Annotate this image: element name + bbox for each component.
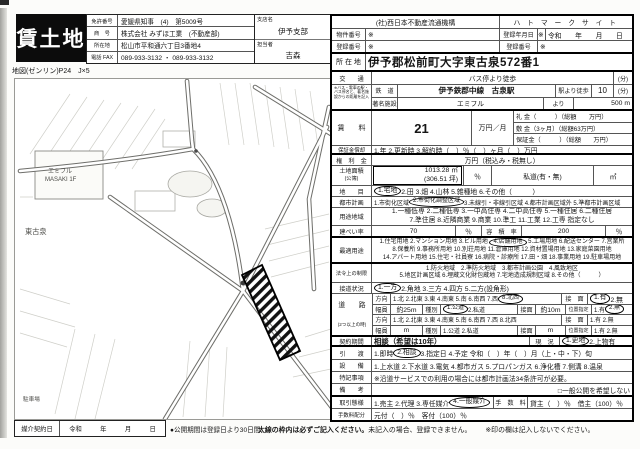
registration-date-value: 令和 年 月 日 [546, 29, 632, 40]
mediation-contract-date: 媒介契約日 令和 年 月 日 [14, 420, 166, 437]
commission-label: 手 数 料 [494, 397, 528, 408]
field-oval [168, 171, 212, 197]
registration-number-row: 登録番号 ※ 登録番号 ※ [332, 40, 632, 52]
scan-edge-shadow [0, 8, 7, 438]
district-label: 東古泉 [25, 227, 47, 236]
option-list: 3.未線引・非線引区域 4.都市計画区域外 5.準都市計画区域 [464, 198, 620, 207]
road-row-3: 方向 1.北 2.北東 3.東 4.南東 5.南 6.南西 7.西 8.北西 接… [373, 314, 632, 325]
utilities-label: 設 備 [332, 360, 372, 371]
special-notes-row: 特記事項 ※沿道サービスでの利用の場合には都市計画法34条許可が必要。 [332, 371, 632, 383]
era-label: 令和 [69, 424, 82, 433]
facility-row: 著名施設 エミフル より 500 m [372, 97, 632, 110]
land-category-value: 1.宅地 2.田 3.畑 4.山林 5.雑種地 6.その他（ ） [372, 186, 632, 196]
rights-money-label: 権 利 金 [332, 155, 372, 165]
parking-label: 駐車場 [23, 395, 40, 403]
zoning-row: 用途地域 1.一種低専 2.二種低専 3.一中高住専 4.二中高住専 5.一種住… [332, 207, 632, 225]
selected-option: 1.宅地 [374, 186, 401, 196]
frontage-value: 1.一方 2.角地 3.三方 4.四方 5.二方(設角形) [372, 283, 632, 293]
option-list: 1.市街化区域 [374, 198, 409, 207]
selected-option: 1.公道 [443, 305, 468, 315]
current-state-label: 現 況 [530, 337, 560, 345]
asterisk-mark: ※ [538, 29, 546, 40]
width-value: 約25m [391, 305, 423, 315]
facility-value: エミフル [398, 98, 544, 110]
utilities-value: 1.上水道 2.下水道 3.電気 4.都市ガス 5.プロパンガス 6.浄化槽 7… [372, 360, 632, 371]
land-area-label: 土地面積 (公簿) [332, 166, 372, 185]
rent-unit: 万円／月 [472, 111, 514, 145]
type-label: 種別 [423, 305, 441, 315]
zoning-line2: 7.準住居 8.近隣商業 9.商業 10.準工 11.工業 12.工専 指定なし [409, 217, 594, 225]
table-row: 免許番号 愛媛県知事 (4) 第5009号 [87, 15, 255, 26]
selected-option: 2.市街化調整区域 [409, 197, 464, 207]
map-reference: 地図(ゼンリン)P24 J×5 [12, 66, 90, 76]
key-money-row: 権 利 金 万円（税込み・税無し） [332, 155, 632, 165]
mediation-date-label: 媒介契約日 [15, 421, 60, 436]
option-list: 3.指定日 4.予定 令和（ ）年（ ）月（上・中・下）旬 [421, 348, 592, 358]
staff-label: 担当者 [255, 39, 331, 49]
access-note: ※バス・電車の駅・バス停名と、著名施設からの距離を記入 [332, 85, 372, 109]
company-name-label: 商 号 [87, 27, 118, 38]
option-list: 1.住宅用地 2.マンション用地 3.ビル用地 [379, 239, 489, 245]
legal-line2: 5.地区計画区域 6.埋蔵文化財包蔵地 7.宅地造成規制区域 8.その他（ ） [399, 273, 604, 281]
amortization-label: 保証金償却 [332, 146, 372, 153]
staff-value: 吉森 [255, 49, 331, 64]
transport-label: 交 通 [332, 72, 372, 84]
access-block: ※バス・電車の駅・バス停名と、著名施設からの距離を記入 鉄 道 伊予鉄郡中線 古… [332, 84, 632, 109]
abutment-label: 接 面 [562, 315, 588, 325]
transport-row: 交 通 バス停より徒歩 (分) [332, 72, 632, 84]
from-label: より [544, 98, 574, 110]
commission-value: 貸主（ ）％ 借主（100）％ [528, 397, 632, 408]
property-number-label: 物件番号 [332, 29, 366, 40]
rent-label: 賃 料 [332, 111, 372, 145]
table-row: 所在地 松山市平和通六丁目3番地4 [87, 39, 255, 51]
best-use-line2: 8.保養所 9.事務所用地 10.別荘用地 11.倉庫用地 12.資材置場用地 … [392, 247, 611, 255]
legal-restrictions-row: 法令上の制限 1.防火地域 2.準防火地域 3.都市計画公園 4.風致地区 5.… [332, 264, 632, 282]
footer-instructions: 太線の枠内は必ずご記入ください。未記入の場合、登録できません。※印の欄は記入しな… [258, 424, 594, 434]
day-label: 日 [150, 424, 156, 433]
license-number-value: 愛媛県知事 (4) 第5009号 [118, 15, 255, 26]
license-number-label: 免許番号 [87, 15, 118, 26]
handover-label: 引 渡 [332, 347, 372, 359]
legal-restrictions-label: 法令上の制限 [332, 264, 372, 282]
option-list: 1.北 2.北東 3.東 4.南東 5.南 6.南西 7.西 [393, 294, 498, 303]
registration-number2-label: 登録番号 [500, 41, 538, 52]
road-second-label: (2つ以上の時) [332, 315, 372, 336]
road-row-4: 幅員 m 種別 1.公道 2.私道 接面 m 位置指定 1.有 2.無 [373, 325, 632, 336]
bold-frame-note: 太線の枠内は必ずご記入ください。 [258, 427, 368, 434]
walk-label: 駅より徒歩 [556, 85, 592, 97]
city-planning-row: 都市計画 1.市街化区域 2.市街化調整区域 3.未線引・非線引区域 4.都市計… [332, 196, 632, 207]
company-name-value: 株式会社 みずほ工業 (不動産部) [118, 27, 255, 38]
walk-minutes: 10 [592, 85, 614, 97]
road-row-2: 幅員 約25m 種別 1.公道 2.私道 接面 約10m 位置指定 1.有 2.… [373, 304, 632, 315]
option-list: 5.工場用地 6.配送センター 7.営業所 [527, 239, 625, 245]
company-address-value: 松山市平和通六丁目3番地4 [118, 40, 255, 51]
option-list: 2.角地 3.三方 4.四方 5.二方(設角形) [401, 283, 509, 293]
handover-row: 引 渡 1.即時 2.相談 3.指定日 4.予定 令和（ ）年（ ）月（上・中・… [332, 347, 632, 359]
position-label: 位置指定 [566, 326, 592, 336]
selected-option: 4.店舗用地 [489, 238, 526, 247]
abut-width-value: 約10m [536, 305, 566, 315]
legal-restrictions-value: 1.防火地域 2.準防火地域 3.都市計画公園 4.風致地区 5.地区計画区域 … [372, 264, 632, 282]
road-label: 道 路 [332, 294, 372, 315]
map-labels: 東古泉 エミフル MASAKI 1F 駐車場 [23, 168, 77, 403]
rent-value: 21 [372, 111, 472, 145]
transaction-type-label: 取引態様 [332, 397, 372, 408]
security-deposit: 敷 金（3ヶ月）（総額63万円） [514, 123, 632, 134]
position-label: 位置指定 [566, 305, 592, 315]
best-use-value: 1.住宅用地 2.マンション用地 3.ビル用地 4.店舗用地 5.工場用地 6.… [372, 238, 632, 262]
unfilled-note: 未記入の場合、登録できません。 [368, 427, 471, 434]
map-roads-surface [20, 81, 331, 419]
map-roads-casing [20, 81, 331, 419]
utilities-row: 設 備 1.上水道 2.下水道 3.電気 4.都市ガス 5.プロパンガス 6.浄… [332, 359, 632, 371]
width-value: m [391, 326, 423, 336]
mediation-date-fields: 令和 年 月 日 [60, 421, 165, 436]
location-label: 所 在 地 [332, 54, 366, 70]
best-use-line1: 1.住宅用地 2.マンション用地 3.ビル用地 4.店舗用地 5.工場用地 6.… [379, 238, 624, 247]
coverage-label: 建ぺい率 [332, 226, 372, 236]
position-value: 1.有 2.無 [592, 305, 632, 315]
remarks-label: 備 考 [332, 384, 372, 395]
rail-line-value: 伊予鉄郡中線 古泉駅 [398, 85, 556, 97]
remarks-row: 備 考 □一般公開を希望しない [332, 383, 632, 395]
remarks-value: □一般公開を希望しない [372, 384, 632, 395]
phone-fax-label: 電話 FAX [87, 52, 118, 63]
abut-width-value: m [536, 326, 566, 336]
zoning-value: 1.一種低専 2.二種低専 3.一中高住専 4.二中高住専 5.一種住居 6.二… [372, 208, 632, 225]
commission-split-value: 元付（ ）％ 客付（100）％ [372, 409, 632, 420]
zoning-line1: 1.一種低専 2.二種低専 3.一中高住専 4.二中高住専 5.一種住居 6.二… [392, 208, 612, 216]
subject-parcel-hatched [242, 265, 300, 360]
coverage-value: 70 [372, 226, 456, 236]
org-name: (社)西日本不動産流通機構 [332, 16, 500, 28]
table-row: 電話 FAX 089-933-3132 ・ 089-933-3132 [87, 51, 255, 63]
location-row: 所 在 地 伊予郡松前町大字東古泉572番1 [332, 52, 632, 72]
road-block: 道 路 (2つ以上の時) 方向 1.北 2.北東 3.東 4.南東 5.南 6.… [332, 293, 632, 335]
direction-label: 方向 [373, 294, 391, 304]
percent-cell: ％ [464, 166, 492, 185]
option-list: 2.上物有 [589, 337, 615, 345]
commission-split-label: 手数料配分 [332, 409, 372, 420]
branch-value: 伊予支部 [255, 24, 331, 39]
road-label-col: 道 路 (2つ以上の時) [332, 294, 373, 335]
direction-value: 1.北 2.北東 3.東 4.南東 5.南 6.南西 7.西 8.北西 [391, 294, 562, 304]
property-number-value: ※ [366, 29, 500, 40]
road-rows: 方向 1.北 2.北東 3.東 4.南東 5.南 6.南西 7.西 8.北西 接… [373, 294, 632, 335]
table-row: 商 号 株式会社 みずほ工業 (不動産部) [87, 26, 255, 38]
legal-line1: 1.防火地域 2.準防火地域 3.都市計画公園 4.風致地区 [426, 266, 578, 274]
rent-block: 賃 料 21 万円／月 礼 金（ ）（総額 万円） 敷 金（3ヶ月）（総額63万… [332, 109, 632, 145]
land-category-label: 地 目 [332, 186, 372, 196]
org-header-row: (社)西日本不動産流通機構 ハ ト マ ー ク サ イ ト [332, 16, 632, 28]
contract-period-value: 相談（希望は10年） [372, 337, 530, 345]
scan-artifact [0, 0, 9, 5]
guarantee-money: 保証金（ ）（総額 万円） [514, 134, 632, 145]
deposit-rows: 礼 金（ ）（総額 万円） 敷 金（3ヶ月）（総額63万円） 保証金（ ）（総額… [514, 111, 632, 145]
percent-sign: ％ [606, 226, 632, 236]
road-frontage-row: 接道状況 1.一方 2.角地 3.三方 4.四方 5.二方(設角形) [332, 282, 632, 293]
land-area-tsubo: (306.51 坪) [424, 176, 458, 184]
registration-number-label: 登録番号 [332, 41, 366, 52]
city-planning-value: 1.市街化区域 2.市街化調整区域 3.未線引・非線引区域 4.都市計画区域外 … [372, 197, 632, 207]
option-list: 1.有 [594, 305, 605, 314]
property-detail-panel: (社)西日本不動産流通機構 ハ ト マ ー ク サ イ ト 物件番号 ※ 登録年… [330, 14, 634, 422]
private-road-cell: 私道(有・無) [492, 166, 594, 185]
abutment-value: 1.有 2.無 [588, 294, 632, 304]
zoning-label: 用途地域 [332, 208, 372, 225]
minutes-unit: (分) [614, 85, 632, 97]
m2-cell: ㎡ [594, 166, 632, 185]
abut-width-label: 接面 [518, 326, 536, 336]
best-use-line3: 14.アパート用地 15.住宅・社員寮 16.病院・診療所 17.田・畑 18.… [383, 255, 621, 262]
frontage-label: 接道状況 [332, 283, 372, 293]
document-title: 賃土地 [16, 14, 86, 62]
commission-split-row: 手数料配分 元付（ ）％ 客付（100）％ [332, 408, 632, 420]
key-money: 礼 金（ ）（総額 万円） [514, 111, 632, 122]
selected-option: 8.北西 [498, 294, 523, 304]
option-list: 2.無 [610, 294, 622, 304]
abutment-label: 接 面 [562, 294, 588, 304]
publication-period-note: ●公開期間は登録日より30日間 [170, 424, 260, 434]
phone-fax-value: 089-933-3132 ・ 089-933-3132 [118, 52, 255, 63]
minutes-unit: (分) [614, 72, 632, 84]
month-label: 月 [125, 424, 131, 433]
land-area-box-cell: 1013.28 ㎡ (306.51 坪) [372, 166, 464, 185]
mall-label-line1: エミフル [48, 168, 72, 175]
rail-row: 鉄 道 伊予鉄郡中線 古泉駅 駅より徒歩 10 (分) [372, 85, 632, 97]
property-number-row: 物件番号 ※ 登録年月日 ※ 令和 年 月 日 [332, 28, 632, 40]
transport-value: バス停より徒歩 [372, 72, 614, 84]
direction-label: 方向 [373, 315, 391, 325]
selected-option: 2.相談 [393, 348, 420, 359]
selected-option: 1.一方 [374, 283, 401, 293]
type-value: 1.公道 2.私道 [441, 305, 518, 315]
special-notes-label: 特記事項 [332, 372, 372, 383]
amortization-value: 1.年 2.更新時 3.解約時（ ）％（ ）ヶ月（ ）万円 [372, 146, 632, 153]
selected-option: 1.更地 [562, 337, 589, 345]
registration-number2-value: ※ [538, 41, 632, 52]
registration-number-value: ※ [366, 41, 500, 52]
abutment-value: 1.有 2.無 [588, 315, 632, 325]
small-building [135, 191, 175, 211]
selected-option: 2.無 [605, 305, 624, 315]
special-notes-value: ※沿道サービスでの利用の場合には都市計画法34条許可が必要。 [372, 372, 632, 383]
type-label: 種別 [423, 326, 441, 336]
coverage-ratio-row: 建ぺい率 70 ％ 容 積 率 200 ％ [332, 225, 632, 236]
position-value: 1.有 2.無 [592, 326, 632, 336]
type-value: 1.公道 2.私道 [441, 326, 518, 336]
branch-label: 支店名 [255, 15, 331, 24]
option-list: 2.私道 [468, 305, 485, 314]
percent-sign: ％ [456, 226, 482, 236]
map-landmark-dot [194, 149, 198, 153]
agency-info-table: 免許番号 愛媛県知事 (4) 第5009号 商 号 株式会社 みずほ工業 (不動… [86, 14, 256, 64]
document-page: 賃土地 免許番号 愛媛県知事 (4) 第5009号 商 号 株式会社 みずほ工業… [0, 0, 640, 449]
option-list: 1.即時 [374, 348, 393, 358]
rights-money-value: 万円（税込み・税無し） [372, 155, 632, 165]
branch-staff-table: 支店名 伊予支部 担当者 吉森 [254, 14, 332, 64]
registration-date-label: 登録年月日 [500, 29, 538, 40]
land-area-row: 土地面積 (公簿) 1013.28 ㎡ (306.51 坪) ％ 私道(有・無)… [332, 165, 632, 185]
asterisk-note: ※印の欄は記入しないでください。 [485, 427, 594, 434]
direction-value: 1.北 2.北東 3.東 4.南東 5.南 6.南西 7.西 8.北西 [391, 315, 562, 325]
land-category-row: 地 目 1.宅地 2.田 3.畑 4.山林 5.雑種地 6.その他（ ） [332, 185, 632, 196]
handover-value: 1.即時 2.相談 3.指定日 4.予定 令和（ ）年（ ）月（上・中・下）旬 [372, 347, 632, 359]
option-list: 2.田 3.畑 4.山林 5.雑種地 6.その他（ ） [401, 186, 539, 196]
city-planning-label: 都市計画 [332, 197, 372, 207]
land-area-label-sub: (公簿) [345, 176, 359, 183]
year-label: 年 [100, 424, 106, 433]
facility-distance: 500 m [574, 98, 632, 110]
emifull-building [35, 151, 103, 199]
rail-label: 鉄 道 [372, 85, 398, 97]
facility-label: 著名施設 [372, 98, 398, 110]
land-area-values: 1013.28 ㎡ (306.51 坪) [373, 166, 462, 184]
width-label: 幅員 [373, 326, 391, 336]
current-state-value: 1.更地 2.上物有 [560, 337, 632, 345]
best-use-label: 最適用途 [332, 238, 372, 262]
best-use-row: 最適用途 1.住宅用地 2.マンション用地 3.ビル用地 4.店舗用地 5.工場… [332, 236, 632, 264]
road-row-1: 方向 1.北 2.北東 3.東 4.南東 5.南 6.南西 7.西 8.北西 接… [373, 294, 632, 304]
access-rows: 鉄 道 伊予鉄郡中線 古泉駅 駅より徒歩 10 (分) 著名施設 エミフル より… [372, 85, 632, 109]
selected-option: 1.有 [590, 294, 610, 304]
contract-period-label: 契約期間 [332, 337, 372, 345]
land-area-label-main: 土地面積 [339, 168, 363, 176]
selected-option: 4.一般媒介 [449, 397, 490, 408]
mall-label-line2: MASAKI 1F [45, 177, 77, 183]
floor-ratio-value: 200 [522, 226, 606, 236]
company-address-label: 所在地 [87, 40, 118, 51]
zenrin-map: 東古泉 エミフル MASAKI 1F 駐車場 [14, 78, 332, 420]
width-label: 幅員 [373, 305, 391, 315]
floor-ratio-label: 容 積 率 [482, 226, 522, 236]
transaction-type-value: 1.売主 2.代理 3.専任媒介 4.一般媒介 [372, 397, 494, 408]
option-list: 1.売主 2.代理 3.専任媒介 [374, 398, 449, 408]
hatomark-site: ハ ト マ ー ク サ イ ト [500, 16, 632, 28]
deposit-amortization-row: 保証金償却 1.年 2.更新時 3.解約時（ ）％（ ）ヶ月（ ）万円 [332, 145, 632, 155]
abut-width-label: 接面 [518, 305, 536, 315]
transaction-type-row: 取引態様 1.売主 2.代理 3.専任媒介 4.一般媒介 手 数 料 貸主（ ）… [332, 395, 632, 408]
location-value: 伊予郡松前町大字東古泉572番1 [366, 54, 632, 70]
map-svg: 東古泉 エミフル MASAKI 1F 駐車場 [15, 79, 331, 419]
field-lines [20, 83, 331, 419]
land-area-m2: 1013.28 ㎡ [425, 167, 458, 175]
contract-period-row: 契約期間 相談（希望は10年） 現 況 1.更地 2.上物有 [332, 335, 632, 347]
